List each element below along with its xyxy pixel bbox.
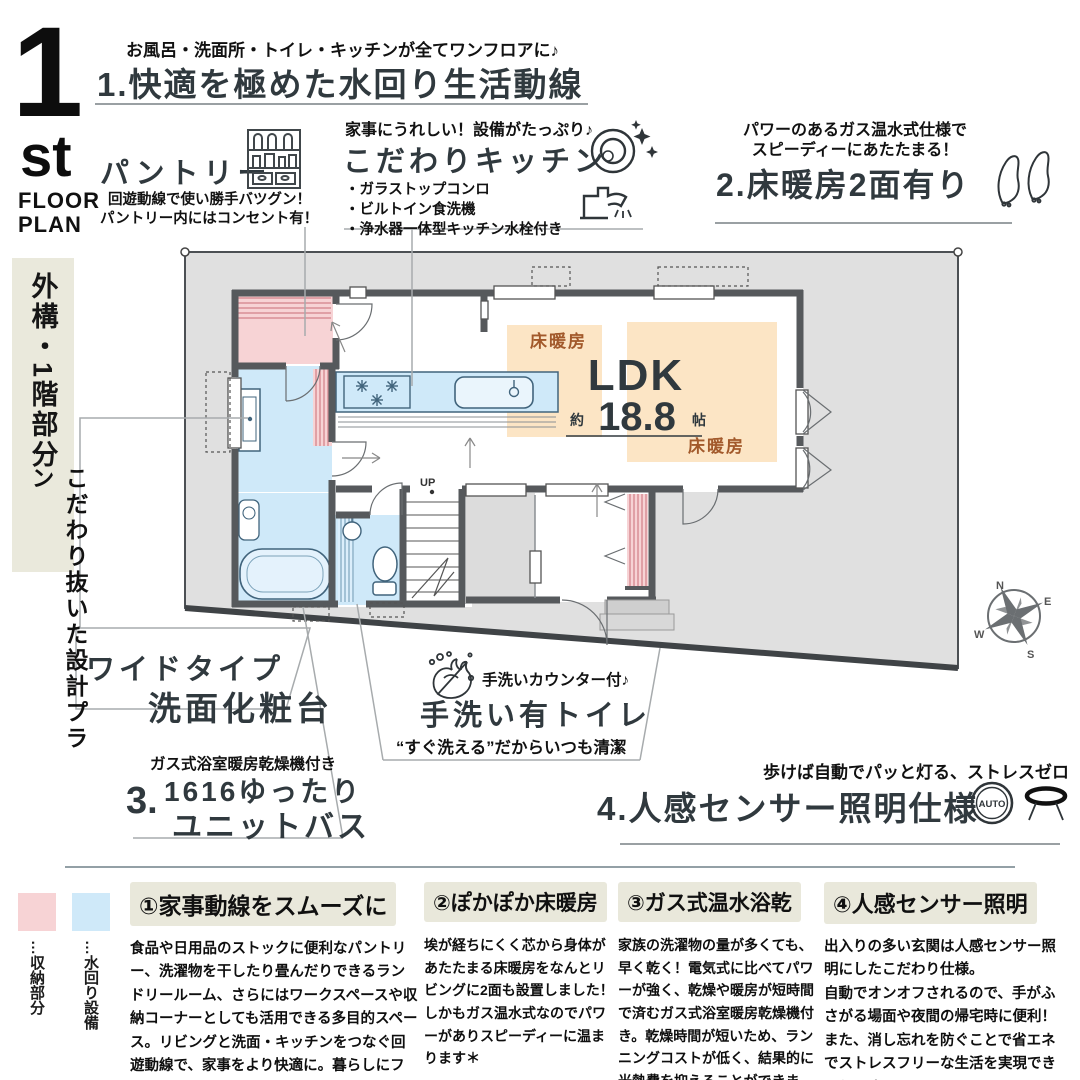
ldk-approx: 約 — [570, 412, 584, 428]
compass-e: E — [1044, 596, 1051, 608]
vanity-icon — [239, 389, 260, 451]
column-4: ④人感センサー照明 出入りの多い玄関は人感センサー照明にしたこだわり仕様。 自動… — [824, 882, 1062, 1080]
plan-word: PLAN — [18, 212, 82, 237]
flyer-page: N E S W 床暖房 床暖房 LDK 約 18.8 帖 UP 1 st FLO… — [0, 0, 1080, 1080]
legend-storage-swatch — [18, 893, 56, 931]
sidebar-tagline: こだわり抜いた設計プラン — [24, 466, 92, 766]
unitbath-number: 3. — [126, 780, 158, 823]
kitchen-bullet-1: ・ガラストップコンロ — [345, 178, 490, 199]
ldk-label: LDK — [588, 351, 684, 400]
toilet-clean-note: “すぐ洗える”だからいつも清潔 — [396, 734, 627, 758]
ceiling-light-icon — [1027, 789, 1065, 821]
column-4-title: ④人感センサー照明 — [824, 882, 1037, 924]
column-3-title: ③ガス式温水浴乾 — [618, 882, 801, 922]
toilet-counter-note: 手洗いカウンター付♪ — [482, 668, 629, 690]
feature4-underline — [620, 843, 1060, 845]
column-2-title: ②ぽかぽか床暖房 — [424, 882, 607, 922]
vanity-line2: 洗面化粧台 — [148, 682, 333, 730]
floor-number: 1 — [12, 22, 79, 124]
pantry-shelf-icon — [246, 128, 302, 190]
feature1-title: 1.快適を極めた水回り生活動線 — [97, 58, 584, 106]
column-2: ②ぽかぽか床暖房 埃が経ちにくく芯から身体があたたまる床暖房をなんとリビングに2… — [424, 882, 616, 1070]
unitbath-line2: ユニットバス — [172, 802, 370, 846]
kitchen-title: こだわりキッチン — [343, 138, 607, 180]
legend-storage-label: …収納部分 — [26, 940, 47, 1070]
feature2-underline — [715, 222, 1012, 224]
column-1: ①家事動線をスムーズに 食品や日用品のストックに便利なパントリー、洗濯物を干した… — [130, 882, 418, 1080]
floorheat-label-2: 床暖房 — [688, 436, 745, 456]
auto-label: AUTO — [979, 799, 1006, 810]
compass-s: S — [1027, 649, 1034, 661]
compass-n: N — [996, 580, 1004, 592]
faucet-icon — [580, 188, 631, 218]
toilet-title: 手洗い有トイレ — [420, 692, 651, 734]
ldk-unit: 帖 — [692, 412, 706, 428]
pantry-desc1: 回遊動線で使い勝手バツグン！ — [108, 188, 311, 209]
pantry-desc2: パントリー内にはコンセント有！ — [100, 207, 318, 228]
section-divider — [65, 866, 1015, 868]
feet-icon — [988, 140, 1068, 210]
feature2-title: 2.床暖房2面有り — [716, 160, 971, 206]
floor-ordinal: st — [20, 128, 72, 186]
compass-w: W — [974, 629, 985, 641]
kitchen-sink-icon — [455, 377, 533, 408]
column-3-body: 家族の洗濯物の量が多くても、早く乾く！電気式に比べてパワーが強く、乾燥や暖房が短… — [618, 934, 820, 1080]
floor-word: FLOOR — [18, 188, 100, 213]
feature4-title: 4.人感センサー照明仕様 — [597, 782, 979, 830]
column-1-body: 食品や日用品のストックに便利なパントリー、洗濯物を干したり畳んだりできるランドリ… — [130, 938, 418, 1080]
kitchen-bullet-2: ・ビルトイン食洗機 — [345, 198, 476, 219]
clean-dish-icon — [592, 120, 658, 172]
stairs-up-label: UP — [420, 477, 435, 489]
column-4-body: 出入りの多い玄関は人感センサー照明にしたこだわり仕様。 自動でオンオフされるので… — [824, 936, 1062, 1080]
legend-water-label: …水回り設備 — [80, 940, 101, 1070]
compass-icon: N E S W — [971, 573, 1056, 661]
floorheat-label-1: 床暖房 — [530, 331, 587, 351]
ldk-area: 18.8 — [598, 395, 676, 439]
feature1-underline — [95, 103, 588, 105]
column-2-body: 埃が経ちにくく芯から身体があたたまる床暖房をなんとリビングに2面も設置しました！… — [424, 934, 616, 1070]
auto-button-icon: AUTO — [972, 783, 1012, 823]
column-3: ③ガス式温水浴乾 家族の洗濯物の量が多くても、早く乾く！電気式に比べてパワーが強… — [618, 882, 820, 1080]
legend-water-swatch — [72, 893, 110, 931]
column-1-title: ①家事動線をスムーズに — [130, 882, 396, 926]
feature2-subtitle2: スピーディーにあたたまる！ — [715, 136, 995, 160]
kitchen-subtitle: 家事にうれしい！設備がたっぷり♪ — [345, 116, 593, 140]
kitchen-bullet-3: ・浄水器一体型キッチン水栓付き — [345, 218, 563, 239]
